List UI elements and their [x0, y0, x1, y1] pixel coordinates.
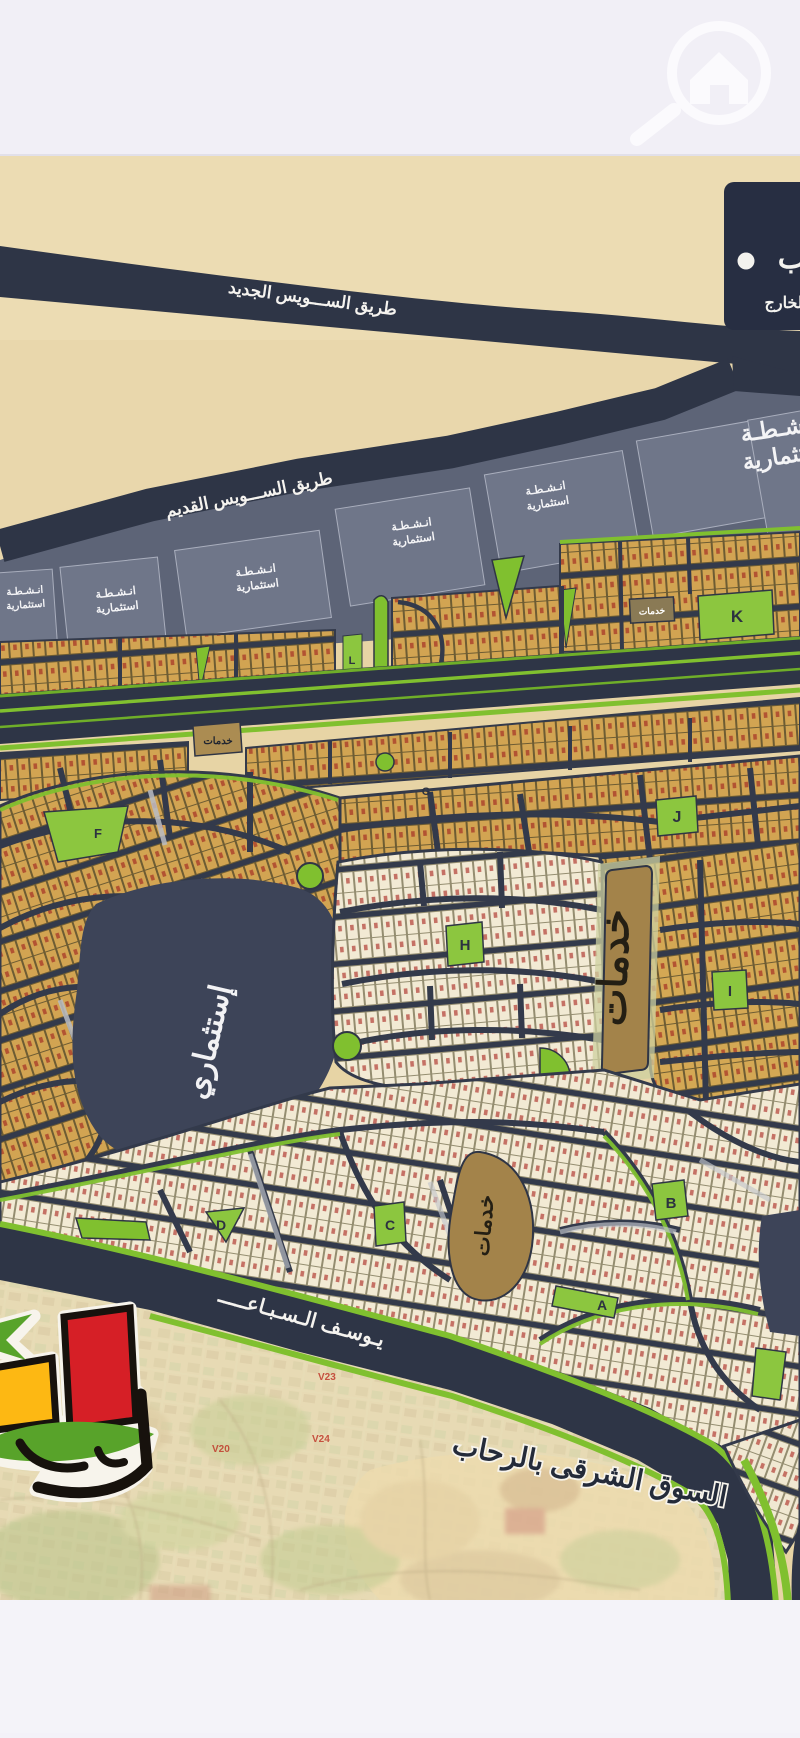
svg-text:V24: V24 [312, 1434, 330, 1445]
svg-text:I: I [728, 983, 732, 1000]
svg-text:G: G [422, 786, 431, 798]
svg-text:V20: V20 [212, 1444, 230, 1455]
svg-text:خدمات: خدمات [203, 736, 232, 747]
svg-text:K: K [731, 607, 744, 626]
svg-text:B: B [666, 1195, 677, 1212]
svg-text:A: A [597, 1297, 607, 1313]
svg-text:L: L [349, 655, 356, 667]
svg-text:D: D [216, 1217, 226, 1233]
svg-text:خدمات: خدمات [590, 908, 638, 1026]
svg-text:V23: V23 [318, 1372, 336, 1383]
svg-text:H: H [460, 937, 471, 954]
svg-text:ب: ب [778, 242, 800, 275]
svg-text:J: J [673, 809, 682, 826]
svg-text:بالخارج: بالخارج [765, 295, 800, 313]
svg-text:C: C [385, 1217, 395, 1233]
svg-text:F: F [94, 826, 102, 841]
svg-text:خدمات: خدمات [639, 605, 666, 616]
